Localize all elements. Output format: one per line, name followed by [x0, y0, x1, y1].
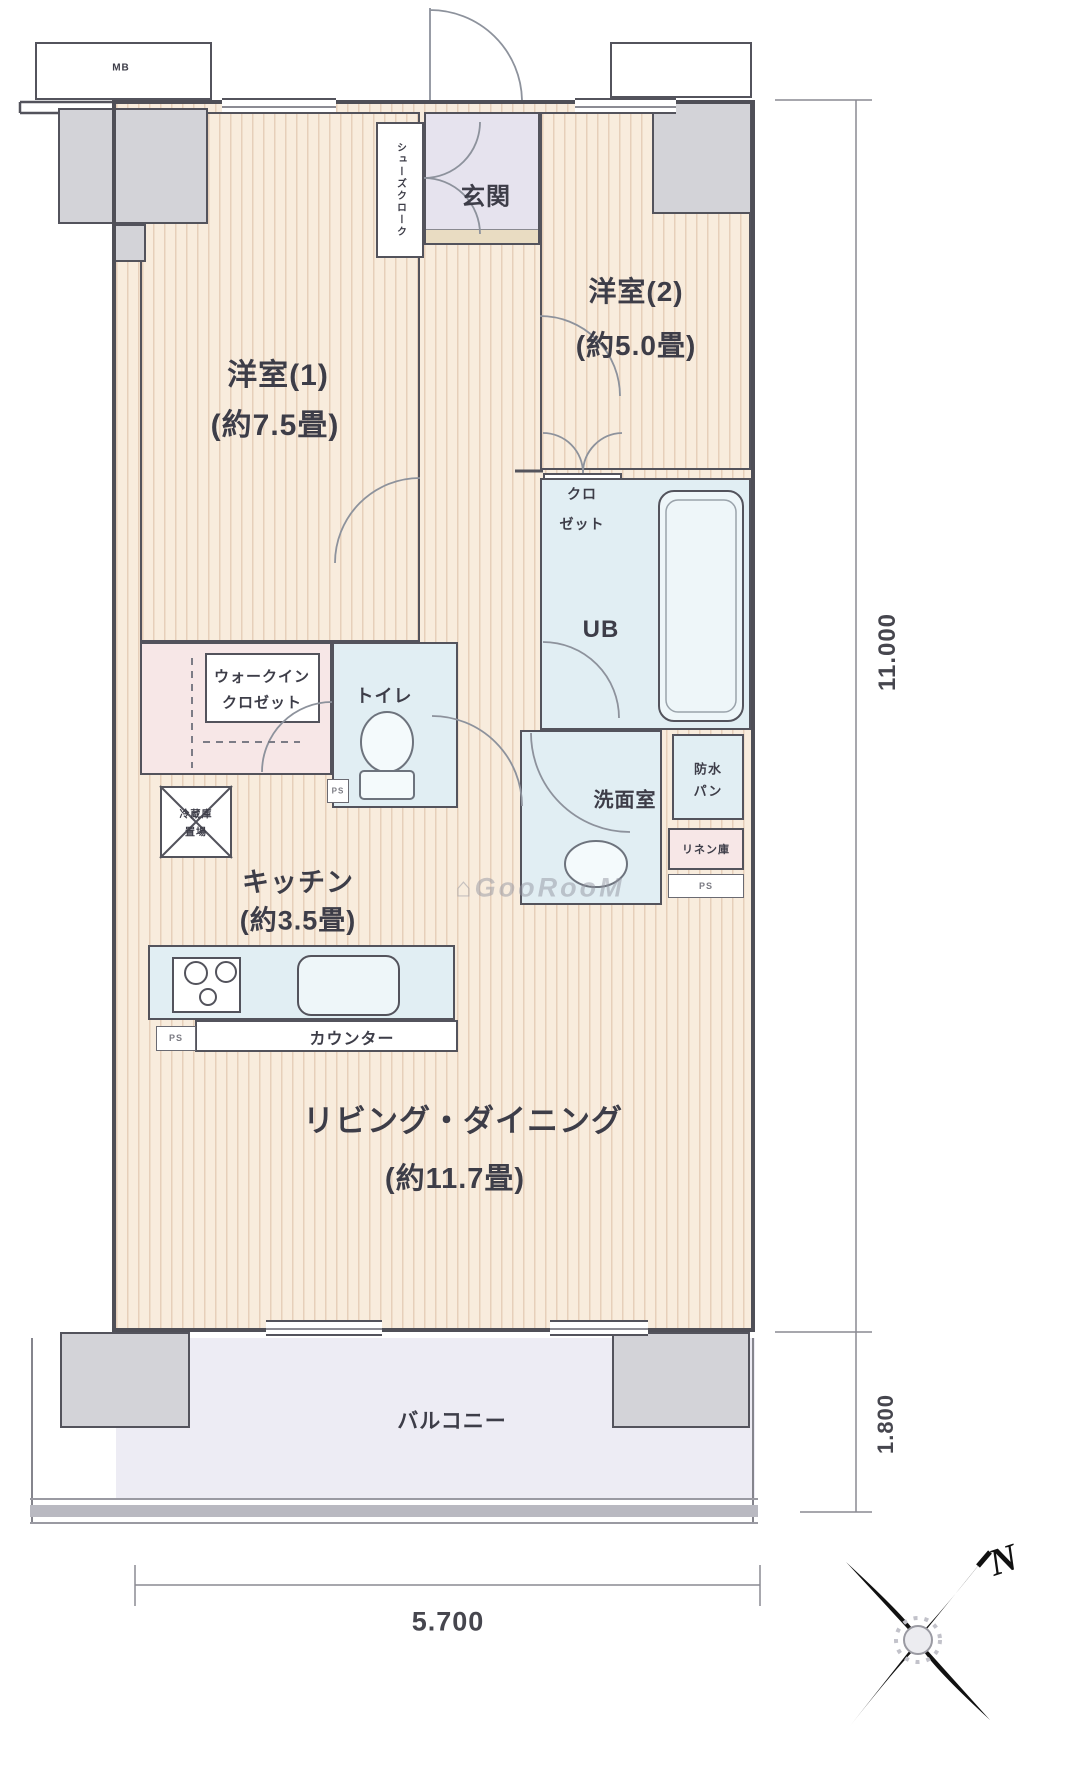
meter-box-label: MB [112, 63, 130, 74]
window-western1 [222, 98, 336, 114]
sink [297, 955, 400, 1016]
floor-plan: N 洋室(1) (約7.5畳) 洋室(2) (約5.0畳) 玄関 シューズクロー… [0, 0, 1072, 1776]
western1-size: (約7.5畳) [211, 400, 340, 444]
window-ld-left [266, 1320, 382, 1336]
fridge-line1: 冷蔵庫 [180, 806, 213, 821]
fridge-space-box [160, 786, 232, 858]
window-western2 [575, 98, 676, 114]
balcony-label: バルコニー [397, 1405, 507, 1435]
compass-hub [904, 1626, 932, 1654]
western2-size: (約5.0畳) [576, 324, 697, 364]
dim-right-balcony: 1.800 [873, 1394, 899, 1454]
window-ld-right [550, 1320, 648, 1336]
wic-label-box [205, 653, 320, 723]
unit-bath-label: UB [583, 616, 620, 644]
ps-toilet-label: PS [332, 787, 345, 796]
compass-star [846, 1556, 990, 1726]
ps-counter-label: PS [169, 1033, 183, 1043]
compass: N [846, 1536, 1024, 1726]
entrance-outer-door-arc [430, 8, 522, 100]
alcove-top-right [610, 42, 752, 98]
fridge-line2: 置場 [185, 824, 207, 839]
bathtub [658, 490, 744, 722]
wic-line2: クロゼット [222, 692, 302, 713]
closet2-line2: ゼット [560, 514, 605, 534]
ps-linen-label: PS [699, 881, 713, 891]
kitchen-name: キッチン [242, 861, 354, 900]
dim-bottom-width: 5.700 [412, 1607, 485, 1638]
watermark: ⌂GooRooM [455, 873, 624, 904]
linen-label: リネン庫 [682, 841, 730, 857]
pan-line2: パン [694, 781, 723, 800]
counter-label: カウンター [309, 1025, 394, 1049]
entrance-label: 玄関 [461, 177, 511, 212]
kitchen-size: (約3.5畳) [240, 899, 357, 938]
wic-line1: ウォークイン [214, 666, 310, 687]
room-toilet [332, 642, 458, 808]
western1-name: 洋室(1) [227, 350, 329, 394]
shoe-closet-label: シューズクローク [393, 142, 408, 238]
compass-north-label: N [983, 1536, 1025, 1585]
closet2-line1: クロ [567, 484, 597, 504]
stove [172, 957, 241, 1013]
corridor-stem [114, 224, 146, 262]
entrance-step [426, 229, 538, 243]
living-dining-name: リビング・ダイニング [303, 1096, 623, 1141]
dim-right-total: 11.000 [874, 613, 902, 691]
toilet-label: トイレ [356, 682, 413, 708]
pillar-top-right [652, 102, 752, 214]
western2-name: 洋室(2) [588, 270, 683, 310]
living-dining-size: (約11.7畳) [385, 1155, 525, 1197]
pillar-bottom-left [60, 1332, 190, 1428]
pillar-bottom-right [612, 1332, 750, 1428]
washroom-label: 洗面室 [594, 784, 657, 813]
corridor-block [58, 108, 208, 224]
pan-line1: 防水 [694, 759, 722, 778]
